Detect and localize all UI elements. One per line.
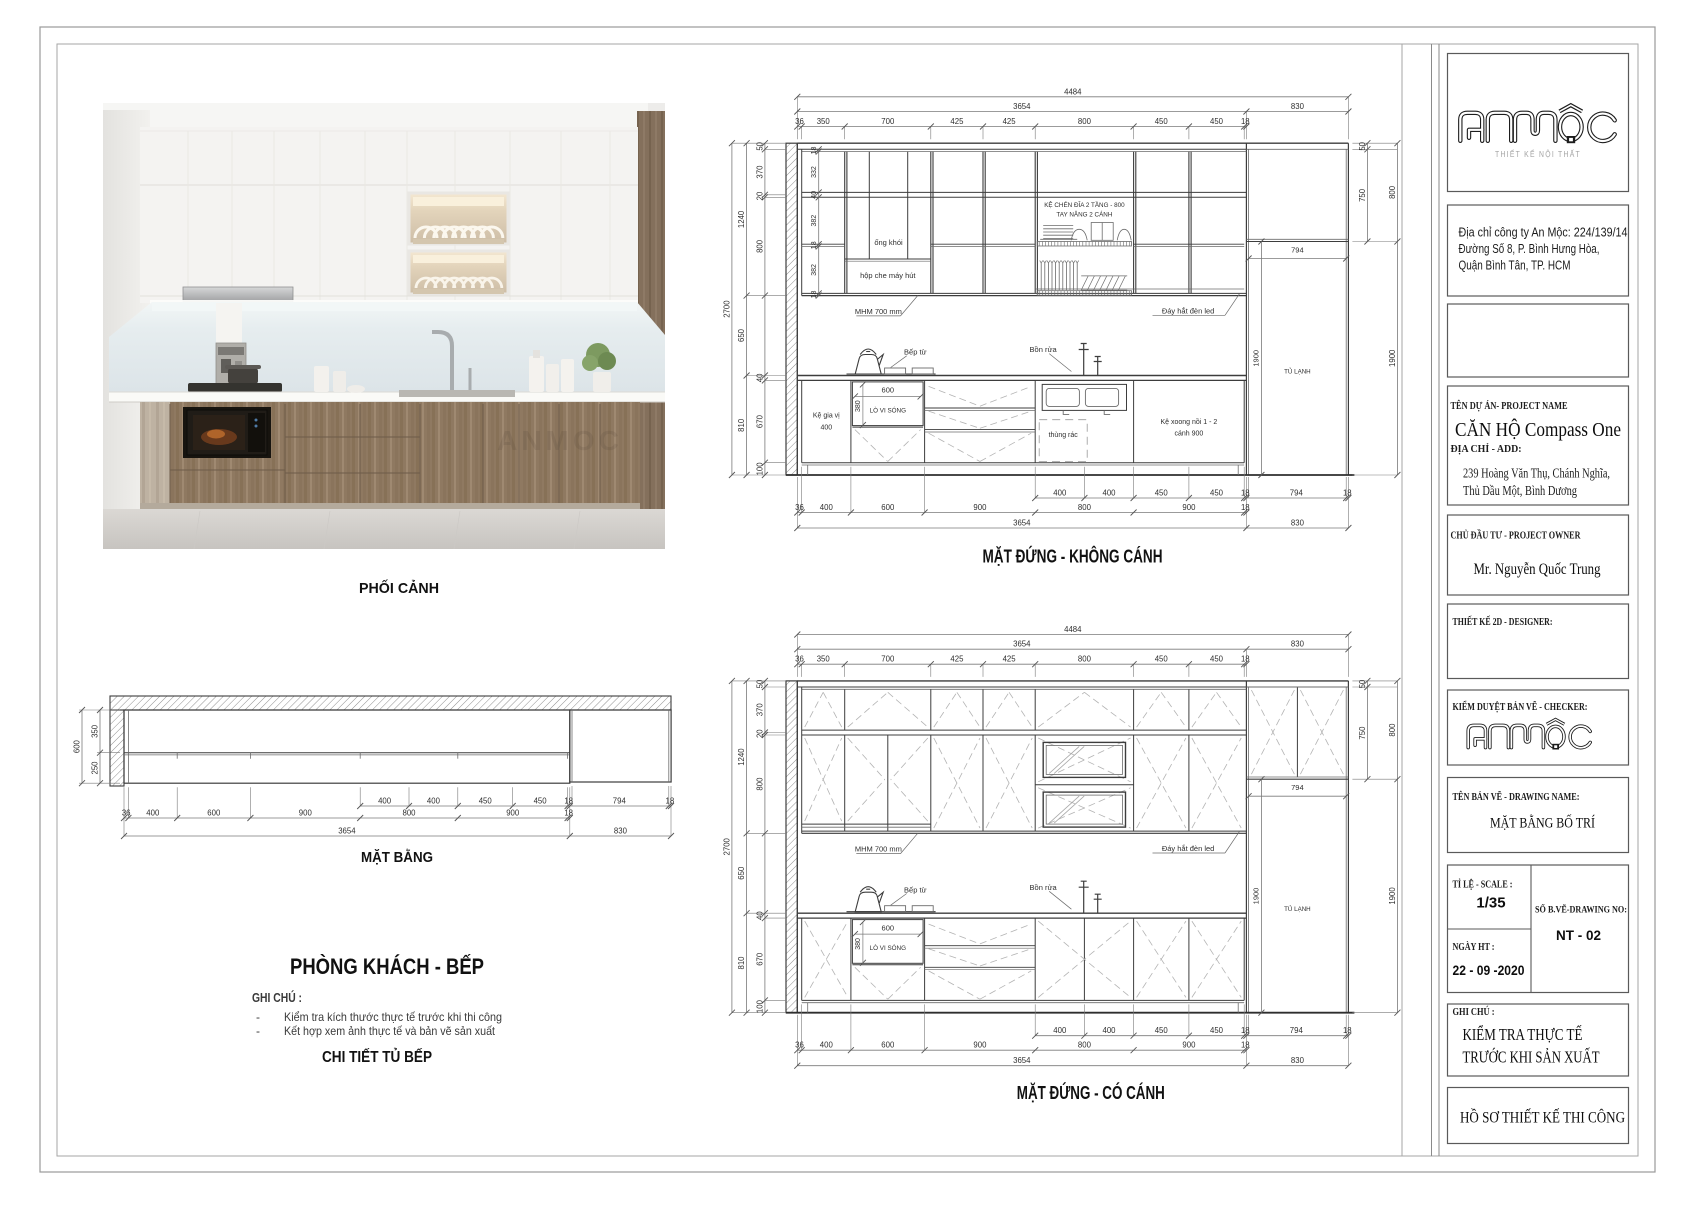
svg-text:830: 830 xyxy=(1291,102,1305,111)
svg-text:KIỂM DUYỆT BẢN VẼ - CHECKER:: KIỂM DUYỆT BẢN VẼ - CHECKER: xyxy=(1453,700,1588,713)
svg-text:ANMOC: ANMOC xyxy=(497,425,623,456)
svg-text:36: 36 xyxy=(795,655,804,664)
svg-text:794: 794 xyxy=(1290,489,1304,498)
svg-text:thùng rác: thùng rác xyxy=(1049,432,1079,439)
svg-text:900: 900 xyxy=(506,809,520,818)
svg-text:18: 18 xyxy=(811,291,818,299)
svg-text:800: 800 xyxy=(1388,185,1397,199)
svg-text:18: 18 xyxy=(1241,489,1250,498)
svg-text:22 - 09 -2020: 22 - 09 -2020 xyxy=(1453,962,1525,978)
svg-text:830: 830 xyxy=(1291,519,1305,528)
svg-text:Bồn rửa: Bồn rửa xyxy=(1030,883,1058,892)
svg-text:650: 650 xyxy=(737,328,746,342)
svg-text:370: 370 xyxy=(755,165,764,179)
svg-text:Thủ Dầu Một, Bình Dương: Thủ Dầu Một, Bình Dương xyxy=(1463,483,1577,498)
svg-text:380: 380 xyxy=(855,938,862,950)
svg-text:50: 50 xyxy=(755,141,764,150)
svg-text:670: 670 xyxy=(755,952,764,966)
svg-text:900: 900 xyxy=(973,503,987,512)
svg-text:KIỂM TRA THỰC TẾ: KIỂM TRA THỰC TẾ xyxy=(1463,1025,1583,1044)
svg-text:900: 900 xyxy=(973,1041,987,1050)
svg-text:810: 810 xyxy=(737,418,746,432)
svg-text:18: 18 xyxy=(1241,503,1250,512)
svg-text:LÒ VI SÓNG: LÒ VI SÓNG xyxy=(870,405,906,414)
svg-text:400: 400 xyxy=(1053,489,1067,498)
svg-text:MẶT ĐỨNG - KHÔNG CÁNH: MẶT ĐỨNG - KHÔNG CÁNH xyxy=(983,546,1163,567)
svg-text:CHỦ ĐẦU TƯ - PROJECT OWNER: CHỦ ĐẦU TƯ - PROJECT OWNER xyxy=(1451,529,1582,542)
svg-text:Mr. Nguyễn Quốc Trung: Mr. Nguyễn Quốc Trung xyxy=(1474,561,1601,578)
svg-text:hộp che máy hút: hộp che máy hút xyxy=(860,271,916,280)
svg-text:700: 700 xyxy=(881,117,895,126)
svg-text:332: 332 xyxy=(811,166,818,178)
svg-text:20: 20 xyxy=(755,191,764,200)
svg-text:400: 400 xyxy=(1102,489,1116,498)
svg-text:MẶT ĐỨNG - CÓ CÁNH: MẶT ĐỨNG - CÓ CÁNH xyxy=(1017,1082,1165,1103)
svg-text:350: 350 xyxy=(91,724,100,738)
svg-text:400: 400 xyxy=(820,1041,834,1050)
svg-text:600: 600 xyxy=(882,386,895,395)
svg-text:Kệ gia vị: Kệ gia vị xyxy=(813,412,840,419)
svg-text:18: 18 xyxy=(564,797,573,806)
svg-text:600: 600 xyxy=(881,503,895,512)
svg-text:810: 810 xyxy=(737,956,746,970)
svg-text:MHM 700 mm: MHM 700 mm xyxy=(855,845,902,854)
svg-text:900: 900 xyxy=(1182,1041,1196,1050)
svg-text:SỐ B.VẼ-DRAWING NO:: SỐ B.VẼ-DRAWING NO: xyxy=(1535,903,1627,916)
svg-text:239 Hoàng Văn Thụ, Chánh Nghĩa: 239 Hoàng Văn Thụ, Chánh Nghĩa, xyxy=(1463,465,1610,480)
svg-text:HỒ SƠ THIẾT KẾ THI CÔNG: HỒ SƠ THIẾT KẾ THI CÔNG xyxy=(1460,1108,1625,1127)
svg-text:36: 36 xyxy=(795,117,804,126)
svg-text:450: 450 xyxy=(479,797,493,806)
svg-text:400: 400 xyxy=(1053,1026,1067,1035)
svg-text:380: 380 xyxy=(855,400,862,412)
svg-text:Kết hợp xem ảnh thực tế và bản: Kết hợp xem ảnh thực tế và bản vẽ sản xu… xyxy=(284,1024,496,1038)
svg-text:830: 830 xyxy=(1291,1056,1305,1065)
svg-text:450: 450 xyxy=(534,797,548,806)
svg-text:18: 18 xyxy=(1241,1041,1250,1050)
svg-text:800: 800 xyxy=(1078,503,1092,512)
svg-text:MẶT BẰNG BỐ TRÍ: MẶT BẰNG BỐ TRÍ xyxy=(1490,814,1595,832)
svg-text:370: 370 xyxy=(755,703,764,717)
svg-text:TỦ LẠNH: TỦ LẠNH xyxy=(1284,906,1310,913)
svg-text:450: 450 xyxy=(1210,1026,1224,1035)
svg-text:Kệ xoong nồi 1 - 2: Kệ xoong nồi 1 - 2 xyxy=(1160,417,1217,426)
svg-text:-: - xyxy=(256,1010,260,1024)
svg-text:750: 750 xyxy=(1358,726,1367,740)
svg-text:PHÒNG KHÁCH - BẾP: PHÒNG KHÁCH - BẾP xyxy=(290,954,484,979)
svg-text:20: 20 xyxy=(755,729,764,738)
svg-text:3654: 3654 xyxy=(1013,519,1031,528)
svg-text:Đáy hắt đèn led: Đáy hắt đèn led xyxy=(1162,306,1215,315)
svg-text:1240: 1240 xyxy=(737,210,746,228)
svg-text:ống khói: ống khói xyxy=(874,238,903,247)
svg-text:425: 425 xyxy=(950,655,964,664)
svg-text:TÊN DỰ ÁN- PROJECT NAME: TÊN DỰ ÁN- PROJECT NAME xyxy=(1451,400,1568,412)
svg-text:400: 400 xyxy=(146,809,160,818)
svg-text:LÒ VI SÓNG: LÒ VI SÓNG xyxy=(870,943,906,952)
svg-text:400: 400 xyxy=(427,797,441,806)
svg-text:TAY NÂNG 2 CÁNH: TAY NÂNG 2 CÁNH xyxy=(1056,210,1112,219)
svg-text:800: 800 xyxy=(1078,655,1092,664)
svg-text:450: 450 xyxy=(1155,117,1169,126)
svg-text:KỆ CHÉN ĐĨA 2 TẦNG - 800: KỆ CHÉN ĐĨA 2 TẦNG - 800 xyxy=(1044,199,1125,209)
svg-text:18: 18 xyxy=(811,147,818,155)
svg-text:18: 18 xyxy=(1241,1026,1250,1035)
svg-text:600: 600 xyxy=(882,923,895,932)
svg-text:425: 425 xyxy=(1003,655,1017,664)
svg-text:382: 382 xyxy=(811,215,818,227)
svg-text:600: 600 xyxy=(881,1041,895,1050)
svg-text:800: 800 xyxy=(402,809,416,818)
svg-text:50: 50 xyxy=(1358,679,1367,688)
svg-text:1900: 1900 xyxy=(1251,888,1260,905)
svg-text:18: 18 xyxy=(811,241,818,249)
svg-text:Bồn rửa: Bồn rửa xyxy=(1030,345,1058,354)
svg-text:4484: 4484 xyxy=(1064,625,1082,634)
svg-text:400: 400 xyxy=(378,797,392,806)
svg-text:-: - xyxy=(256,1024,260,1038)
svg-text:PHỐI CẢNH: PHỐI CẢNH xyxy=(359,579,439,597)
svg-text:794: 794 xyxy=(1291,783,1304,792)
svg-text:TÊN BẢN VẼ - DRAWING NAME:: TÊN BẢN VẼ - DRAWING NAME: xyxy=(1453,791,1580,803)
svg-text:40: 40 xyxy=(755,373,764,382)
svg-text:2700: 2700 xyxy=(722,300,731,318)
svg-text:250: 250 xyxy=(91,761,100,775)
svg-text:18: 18 xyxy=(1343,1026,1352,1035)
svg-text:800: 800 xyxy=(1078,117,1092,126)
svg-text:2700: 2700 xyxy=(722,837,731,855)
svg-text:CHI TIẾT TỦ BẾP: CHI TIẾT TỦ BẾP xyxy=(322,1047,432,1066)
svg-text:TỈ LỆ - SCALE :: TỈ LỆ - SCALE : xyxy=(1453,878,1513,891)
svg-text:400: 400 xyxy=(820,503,834,512)
svg-text:450: 450 xyxy=(1210,655,1224,664)
svg-text:425: 425 xyxy=(950,117,964,126)
svg-text:MHM 700 mm: MHM 700 mm xyxy=(855,307,902,316)
svg-text:800: 800 xyxy=(755,777,764,791)
svg-text:40: 40 xyxy=(755,911,764,920)
svg-text:700: 700 xyxy=(881,655,895,664)
svg-text:1900: 1900 xyxy=(1388,349,1397,367)
svg-text:3654: 3654 xyxy=(338,827,356,836)
svg-text:600: 600 xyxy=(207,809,221,818)
svg-text:Địa chỉ công ty An Mộc: 224/13: Địa chỉ công ty An Mộc: 224/139/14 xyxy=(1459,225,1628,240)
svg-text:50: 50 xyxy=(1358,141,1367,150)
svg-text:Đường Số 8, P. Bình Hưng Hòa,: Đường Số 8, P. Bình Hưng Hòa, xyxy=(1459,241,1600,256)
svg-text:100: 100 xyxy=(755,999,764,1013)
svg-text:1240: 1240 xyxy=(737,748,746,766)
svg-text:450: 450 xyxy=(1155,655,1169,664)
svg-text:ĐỊA CHỈ - ADD:: ĐỊA CHỈ - ADD: xyxy=(1451,443,1522,455)
svg-text:3654: 3654 xyxy=(1013,1056,1031,1065)
svg-text:450: 450 xyxy=(1210,117,1224,126)
svg-text:800: 800 xyxy=(1078,1041,1092,1050)
svg-text:450: 450 xyxy=(1210,489,1224,498)
svg-text:800: 800 xyxy=(1388,723,1397,737)
svg-text:670: 670 xyxy=(755,414,764,428)
svg-text:18: 18 xyxy=(564,809,573,818)
svg-text:450: 450 xyxy=(1155,1026,1169,1035)
svg-text:cánh 900: cánh 900 xyxy=(1174,431,1203,438)
svg-text:GHI CHÚ :: GHI CHÚ : xyxy=(1453,1006,1495,1018)
svg-text:Đáy hắt đèn led: Đáy hắt đèn led xyxy=(1162,844,1215,853)
svg-text:NGÀY HT :: NGÀY HT : xyxy=(1453,941,1495,953)
svg-text:100: 100 xyxy=(755,462,764,476)
svg-text:794: 794 xyxy=(613,797,627,806)
svg-text:THIẾT KẾ NỘI THẤT: THIẾT KẾ NỘI THẤT xyxy=(1495,149,1581,159)
svg-text:18: 18 xyxy=(1343,489,1352,498)
svg-text:400: 400 xyxy=(820,425,832,432)
svg-text:750: 750 xyxy=(1358,188,1367,202)
svg-text:40: 40 xyxy=(811,191,818,199)
svg-text:900: 900 xyxy=(1182,503,1196,512)
svg-text:382: 382 xyxy=(811,264,818,276)
svg-text:600: 600 xyxy=(73,739,82,753)
svg-text:400: 400 xyxy=(1102,1026,1116,1035)
svg-text:1900: 1900 xyxy=(1251,350,1260,367)
svg-text:900: 900 xyxy=(299,809,313,818)
svg-text:36: 36 xyxy=(122,809,131,818)
svg-text:50: 50 xyxy=(755,679,764,688)
svg-text:18: 18 xyxy=(1241,117,1250,126)
svg-text:3654: 3654 xyxy=(1013,102,1031,111)
svg-text:MẶT BẰNG: MẶT BẰNG xyxy=(361,848,433,866)
svg-text:650: 650 xyxy=(737,866,746,880)
svg-text:TRƯỚC KHI SẢN XUẤT: TRƯỚC KHI SẢN XUẤT xyxy=(1463,1048,1600,1067)
svg-text:Quận Bình Tân, TP. HCM: Quận Bình Tân, TP. HCM xyxy=(1459,258,1571,273)
svg-text:36: 36 xyxy=(795,1041,804,1050)
svg-text:450: 450 xyxy=(1155,489,1169,498)
svg-text:Bếp từ: Bếp từ xyxy=(904,348,927,357)
svg-text:800: 800 xyxy=(755,239,764,253)
svg-text:1/35: 1/35 xyxy=(1476,895,1505,912)
svg-text:CĂN HỘ Compass One: CĂN HỘ Compass One xyxy=(1455,419,1621,441)
svg-text:18: 18 xyxy=(1241,655,1250,664)
svg-text:830: 830 xyxy=(614,827,628,836)
svg-text:350: 350 xyxy=(817,655,831,664)
svg-text:350: 350 xyxy=(817,117,831,126)
svg-text:830: 830 xyxy=(1291,640,1305,649)
svg-text:TỦ LẠNH: TỦ LẠNH xyxy=(1284,368,1310,375)
svg-text:1900: 1900 xyxy=(1388,887,1397,905)
svg-text:425: 425 xyxy=(1003,117,1017,126)
svg-text:3654: 3654 xyxy=(1013,640,1031,649)
svg-text:Bếp từ: Bếp từ xyxy=(904,885,927,894)
svg-text:36: 36 xyxy=(795,503,804,512)
svg-text:Kiểm tra kích thước thực tế tr: Kiểm tra kích thước thực tế trước khi th… xyxy=(284,1010,502,1024)
svg-text:794: 794 xyxy=(1290,1026,1304,1035)
svg-text:GHI CHÚ :: GHI CHÚ : xyxy=(252,990,302,1005)
svg-text:THIẾT KẾ 2D - DESIGNER:: THIẾT KẾ 2D - DESIGNER: xyxy=(1453,615,1553,628)
svg-text:794: 794 xyxy=(1291,246,1304,255)
svg-text:18: 18 xyxy=(666,797,675,806)
svg-text:NT - 02: NT - 02 xyxy=(1556,928,1601,943)
svg-text:4484: 4484 xyxy=(1064,87,1082,96)
